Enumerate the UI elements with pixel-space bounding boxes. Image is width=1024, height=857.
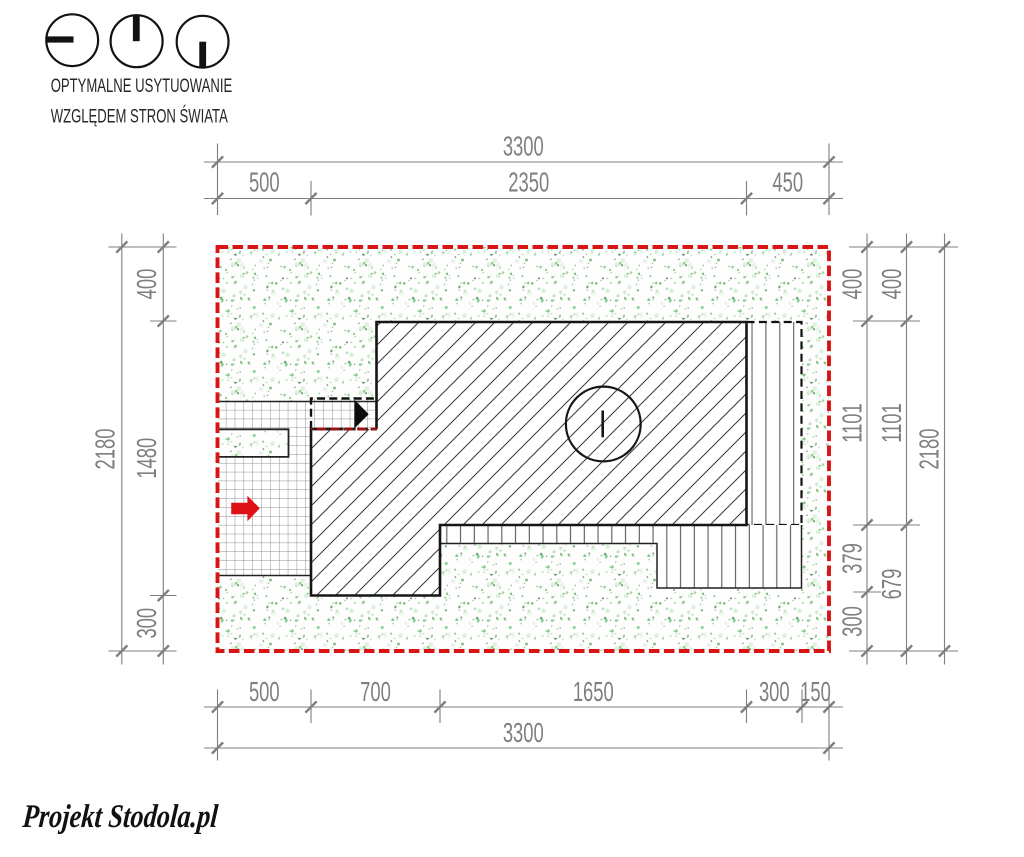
svg-text:400: 400 (876, 269, 907, 300)
svg-text:2180: 2180 (90, 429, 121, 470)
svg-text:1480: 1480 (131, 438, 162, 479)
svg-text:300: 300 (837, 606, 868, 637)
svg-text:500: 500 (249, 167, 280, 198)
svg-text:1650: 1650 (573, 676, 614, 707)
svg-text:700: 700 (360, 676, 391, 707)
svg-text:450: 450 (772, 167, 803, 198)
svg-text:400: 400 (131, 269, 162, 300)
svg-text:150: 150 (800, 676, 831, 707)
svg-text:300: 300 (759, 676, 790, 707)
svg-text:500: 500 (249, 676, 280, 707)
svg-text:2350: 2350 (508, 167, 549, 198)
svg-text:OPTYMALNE USYTUOWANIE: OPTYMALNE USYTUOWANIE (51, 76, 233, 97)
svg-text:679: 679 (876, 569, 907, 600)
svg-text:3300: 3300 (503, 131, 544, 162)
svg-text:300: 300 (131, 608, 162, 639)
svg-text:400: 400 (837, 269, 868, 300)
svg-text:2180: 2180 (914, 429, 945, 470)
svg-text:3300: 3300 (503, 717, 544, 748)
svg-text:WZGLĘDEM STRON ŚWIATA: WZGLĘDEM STRON ŚWIATA (51, 105, 228, 127)
svg-text:379: 379 (837, 543, 868, 574)
svg-text:1101: 1101 (837, 403, 868, 443)
svg-text:Projekt Stodola.pl: Projekt Stodola.pl (20, 798, 220, 834)
svg-text:1101: 1101 (876, 403, 907, 443)
